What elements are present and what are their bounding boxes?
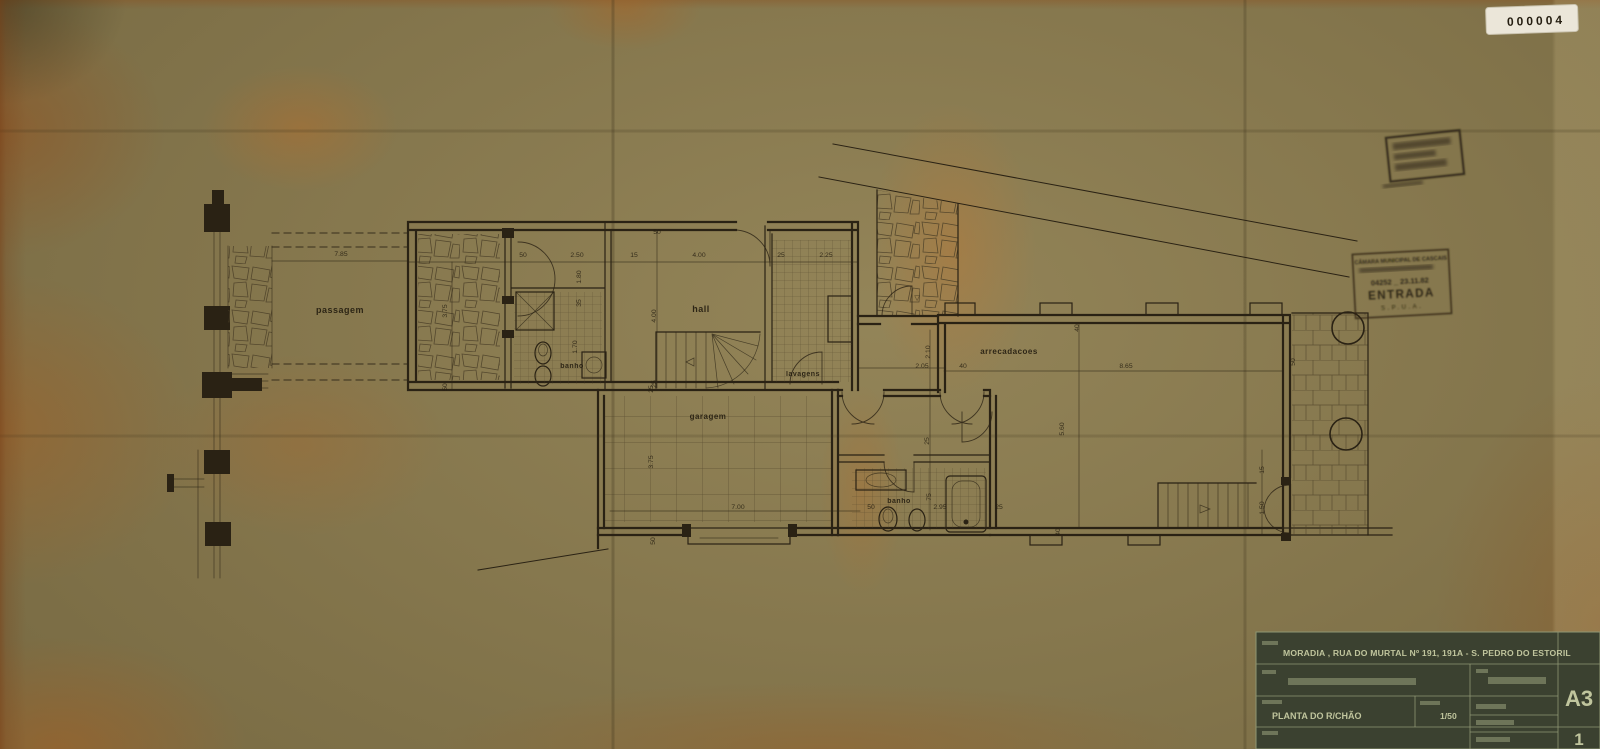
title-block-drawing-title: PLANTA DO R/CHÃO (1272, 711, 1362, 721)
title-block-sheet-number: 1 (1574, 730, 1583, 749)
level-marker: ▽ (914, 295, 920, 302)
dim-label: 25 (777, 252, 785, 259)
scanned-floor-plan-sheet: 7.85 passagem banho 1.80 35 1.70 3.75 50 (0, 0, 1600, 749)
dim-label: 8.65 (1119, 363, 1132, 370)
dim-label: 15 (1259, 466, 1266, 474)
dim-label: 50 (1290, 358, 1297, 366)
dim-label: 40 (1074, 324, 1081, 332)
dim-label: 25 (995, 504, 1003, 511)
room-label-garagem: garagem (690, 412, 727, 421)
dim-label: 50 (653, 229, 661, 236)
stamp-word-entrada: ENTRADA (1368, 287, 1435, 302)
dim-label: 35 (576, 299, 583, 307)
left-boundary-wall (167, 190, 272, 578)
floor-plan-drawing: 7.85 passagem banho 1.80 35 1.70 3.75 50 (0, 0, 1600, 749)
dim-label: 50 (519, 252, 527, 259)
dim-label: 50 (650, 537, 657, 545)
room-label-passagem: passagem (316, 305, 364, 315)
vestibule-and-lower-bath: banho 50 2.95 25 75 25 2.10 2.05 (838, 330, 1003, 535)
passage-corridor: 7.85 passagem (272, 233, 408, 380)
archive-number-sticker: 000004 (1486, 4, 1579, 34)
dim-label: 2.50 (570, 252, 583, 259)
room-label-banho-upper: banho (560, 363, 584, 370)
stamp-number-date: 04252 _ 23.11.82 (1371, 275, 1429, 287)
room-label-lavagens: lavagens (786, 371, 820, 378)
dim-label: 50 (442, 383, 449, 391)
dim-label: 5.60 (1059, 422, 1066, 435)
dim-label: 4.00 (651, 309, 658, 322)
dim-label: 2.95 (933, 504, 946, 511)
dim-label: 75 (926, 493, 933, 501)
dim-label: 1.80 (576, 270, 583, 283)
right-paved-terrace: 50 (1290, 312, 1368, 535)
dim-label: 3.75 (442, 304, 449, 317)
smudged-stamp (1378, 130, 1465, 188)
hall-staircase (656, 332, 760, 388)
stamp-authority: CÂMARA MUNICIPAL DE CASCAIS (1354, 254, 1447, 266)
garage: garagem 3.75 25 7.00 50 (598, 385, 860, 548)
dim-label: 2.05 (915, 363, 928, 370)
room-label-hall: hall (692, 304, 710, 314)
stamp-footer: S.P.U.A. (1381, 304, 1423, 312)
dim-label: 50 (867, 504, 875, 511)
right-staircase (1158, 483, 1256, 528)
dim-label: 2.25 (819, 252, 832, 259)
room-label-banho-lower: banho (887, 498, 911, 505)
dim-label: 2.10 (925, 345, 932, 358)
entry-stone-path: ▽ (858, 190, 958, 324)
dim-label: 7.00 (731, 504, 744, 511)
dim-label: 1.70 (572, 340, 579, 353)
dim-label: 7.85 (334, 251, 347, 258)
title-block-address: MORADIA , RUA DO MURTAL Nº 191, 191A - S… (1283, 648, 1571, 658)
room-label-arrecadacoes: arrecadacoes (980, 347, 1038, 356)
dim-label: 25 (648, 385, 655, 393)
title-block-scale: 1/50 (1440, 711, 1457, 721)
entrada-stamp: CÂMARA MUNICIPAL DE CASCAIS 04252 _ 23.1… (1352, 249, 1451, 318)
dim-label: 1.50 (1259, 501, 1266, 514)
dim-label: 3.75 (648, 455, 655, 468)
dim-label: 40 (959, 363, 967, 370)
sticker-number: 000004 (1507, 13, 1566, 29)
dim-label: 4.00 (692, 252, 705, 259)
title-block: MORADIA , RUA DO MURTAL Nº 191, 191A - S… (1256, 632, 1600, 749)
lavagens-room: lavagens 25 2.25 (765, 226, 852, 390)
title-block-sheet-format: A3 (1565, 686, 1593, 711)
dim-label: 15 (630, 252, 638, 259)
dim-label: 40 (1055, 528, 1062, 536)
